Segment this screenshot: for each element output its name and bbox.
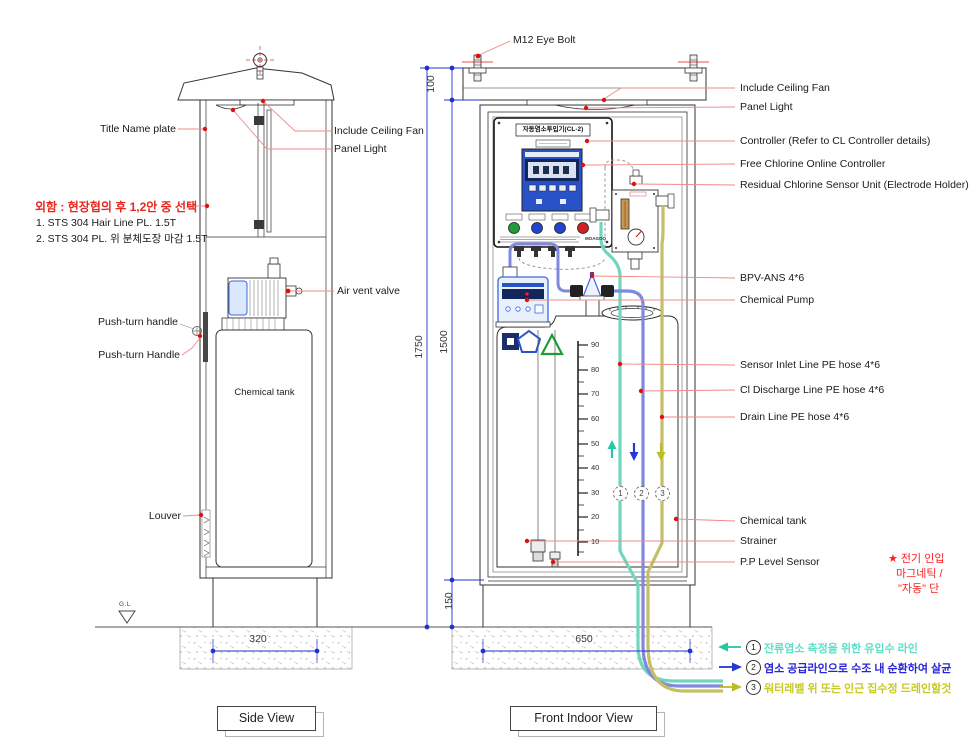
- ceiling-fan-front: [527, 100, 647, 105]
- front-label-sensor-inlet-hose: Sensor Inlet Line PE hose 4*6: [740, 358, 880, 372]
- cad-linework: [0, 0, 976, 750]
- dim-100: 100: [425, 75, 437, 93]
- louver-shape: [202, 510, 210, 557]
- push-turn-handle-shape: [203, 312, 208, 362]
- ground-level-label: G.L: [119, 601, 131, 608]
- push-turn-handle-label: Push-turn handle: [98, 315, 178, 329]
- dim-150: 150: [443, 592, 455, 610]
- controller-title: 자동염소투입기(CL-2): [516, 124, 590, 136]
- front-label-panel-light: Panel Light: [740, 100, 793, 114]
- m12-eye-bolt-label: M12 Eye Bolt: [513, 33, 575, 47]
- legend-num-1: 1: [746, 640, 761, 655]
- dim-320: 320: [238, 633, 278, 645]
- scale-tick-30: 30: [591, 488, 599, 497]
- front-label-drain-hose: Drain Line PE hose 4*6: [740, 410, 849, 424]
- red-lamp-icon: [578, 223, 589, 234]
- electrical-note-line-2: 마그네틱 /: [896, 565, 943, 581]
- legend-arrows: [718, 643, 742, 692]
- front-label-chemical-pump: Chemical Pump: [740, 293, 814, 307]
- hinge-icon: [254, 116, 264, 125]
- louver-label: Louver: [149, 509, 181, 523]
- blue-lamp-icon: [555, 223, 566, 234]
- scale-tick-20: 20: [591, 512, 599, 521]
- chemical-tank-side-shape: [216, 330, 312, 567]
- front-label-chemical-tank: Chemical tank: [740, 514, 807, 528]
- include-ceiling-fan-side-label: Include Ceiling Fan: [334, 124, 424, 138]
- tank-cap: [602, 306, 662, 320]
- scale-tick-90: 90: [591, 340, 599, 349]
- hinge-icon: [254, 220, 264, 229]
- dim-1750: 1750: [413, 335, 425, 358]
- enclosure-option-1: 1. STS 304 Hair Line PL. 1.5T: [36, 216, 176, 230]
- green-lamp-icon: [509, 223, 520, 234]
- scale-tick-60: 60: [591, 414, 599, 423]
- legend-text-1: 잔류염소 측정을 위한 유입수 라인: [764, 640, 918, 656]
- enclosure-note: 외함 : 현장협의 후 1,2안 중 선택: [35, 198, 197, 215]
- strainer-shape: [531, 540, 545, 561]
- left-arrow-icon: [718, 643, 728, 652]
- front-label-discharge-hose: Cl Discharge Line PE hose 4*6: [740, 383, 884, 397]
- front-label-residual-sensor: Residual Chlorine Sensor Unit (Electrode…: [740, 178, 969, 192]
- free-chlorine-controller-unit: [522, 149, 582, 211]
- side-view-title: Side View: [217, 706, 316, 731]
- electrical-note-line-1: ★ 전기 인입: [888, 550, 944, 566]
- scale-tick-70: 70: [591, 389, 599, 398]
- legend-text-3: 워터레벨 위 또는 인근 집수정 드레인할것: [764, 680, 951, 696]
- front-label-ceiling-fan: Include Ceiling Fan: [740, 81, 830, 95]
- scale-tick-10: 10: [591, 537, 599, 546]
- drawing-sheet: Title Name plate 외함 : 현장협의 후 1,2안 중 선택 1…: [0, 0, 976, 750]
- panel-light-side-label: Panel Light: [334, 142, 387, 156]
- ground-level-symbol: [119, 611, 135, 623]
- controller-brand: MOAGOO: [585, 236, 606, 241]
- blue-lamp-icon: [532, 223, 543, 234]
- scale-tick-40: 40: [591, 463, 599, 472]
- front-label-free-chlorine-controller: Free Chlorine Online Controller: [740, 157, 885, 171]
- roof-side: [178, 68, 334, 100]
- ground: [95, 611, 712, 669]
- front-label-strainer: Strainer: [740, 534, 777, 548]
- chemical-tank-side-label: Chemical tank: [222, 387, 307, 398]
- hoses: [601, 206, 723, 691]
- scale-tick-80: 80: [591, 365, 599, 374]
- right-arrow-icon: [732, 683, 742, 692]
- right-arrow-icon: [732, 663, 742, 672]
- hose-marker-1: 1: [613, 486, 628, 501]
- dim-1500: 1500: [438, 330, 450, 353]
- front-label-controller: Controller (Refer to CL Controller detai…: [740, 134, 930, 148]
- front-label-bpv: BPV-ANS 4*6: [740, 271, 804, 285]
- top-plate: [463, 68, 706, 100]
- front-label-level-sensor: P.P Level Sensor: [740, 555, 820, 569]
- front-view-title: Front Indoor View: [510, 706, 657, 731]
- light-fixture-side: [267, 110, 271, 232]
- tank-front: [497, 306, 678, 567]
- push-turn-handle-label-2: Push-turn Handle: [98, 348, 180, 362]
- legend-num-3: 3: [746, 680, 761, 695]
- title-name-plate-label: Title Name plate: [100, 122, 176, 136]
- legend-text-2: 염소 공급라인으로 수조 내 순환하여 살균: [764, 660, 951, 676]
- dim-650: 650: [564, 633, 604, 645]
- air-vent-valve-label: Air vent valve: [337, 284, 400, 298]
- hose-marker-3: 3: [655, 486, 670, 501]
- scale-tick-50: 50: [591, 439, 599, 448]
- enclosure-option-2: 2. STS 304 PL. 위 분체도장 마감 1.5T: [36, 232, 208, 246]
- hose-marker-2: 2: [634, 486, 649, 501]
- electrical-note-line-3: "자동" 단: [898, 580, 939, 596]
- legend-num-2: 2: [746, 660, 761, 675]
